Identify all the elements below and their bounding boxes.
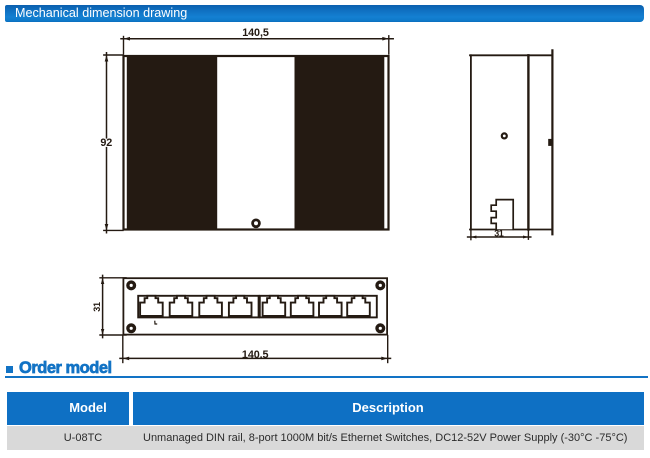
svg-text:140,5: 140,5 (242, 27, 269, 39)
svg-text:31: 31 (92, 302, 102, 312)
svg-text:92: 92 (100, 137, 112, 149)
svg-text:31: 31 (494, 228, 504, 238)
svg-text:140.5: 140.5 (242, 349, 269, 361)
